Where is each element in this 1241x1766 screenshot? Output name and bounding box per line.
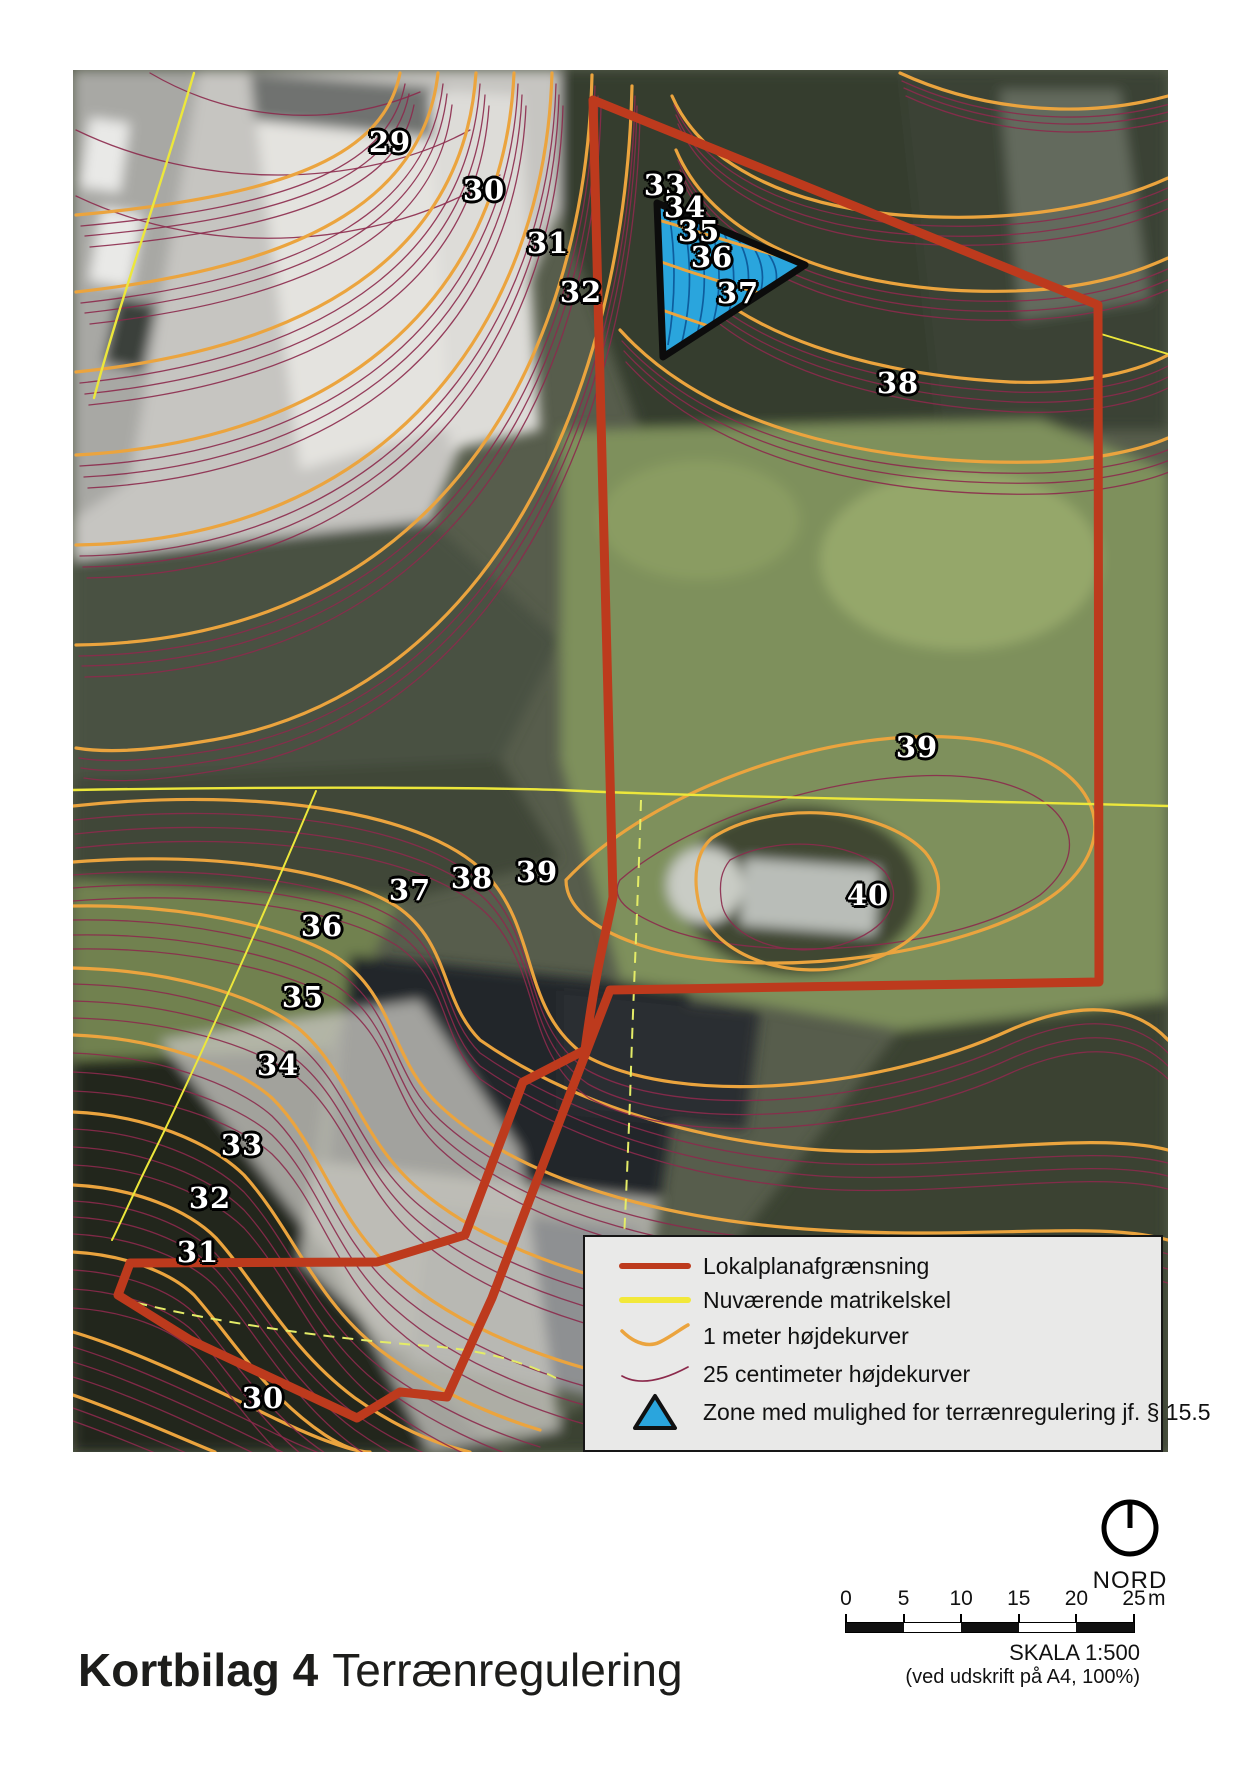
title-bold: Kortbilag 4 bbox=[78, 1644, 318, 1696]
legend-label: Nuværende matrikelskel bbox=[703, 1287, 951, 1314]
scale-tick-label: 0 bbox=[840, 1587, 852, 1611]
legend-item-25cm-contour: 25 centimeter højdekurver bbox=[585, 1357, 1161, 1391]
orange-contour-icon bbox=[607, 1323, 703, 1349]
page-title: Kortbilag 4Terrænregulering bbox=[78, 1643, 683, 1697]
scale-unit-label: m bbox=[1148, 1587, 1166, 1611]
map-legend: Lokalplanafgrænsning Nuværende matrikels… bbox=[583, 1235, 1163, 1452]
legend-label: Zone med mulighed for terrænregulering j… bbox=[703, 1399, 1211, 1426]
legend-item-boundary: Lokalplanafgrænsning bbox=[585, 1249, 1161, 1283]
scale-text: SKALA 1:500 bbox=[845, 1640, 1140, 1666]
map-sheet-page: 2930313233343536373839403738393635343332… bbox=[0, 0, 1241, 1766]
title-regular: Terrænregulering bbox=[332, 1644, 682, 1696]
north-icon bbox=[1092, 1494, 1168, 1560]
scale-tick-label: 15 bbox=[1007, 1587, 1030, 1611]
blue-triangle-icon bbox=[607, 1392, 703, 1432]
scale-segment bbox=[1076, 1623, 1134, 1632]
map-canvas bbox=[0, 0, 1241, 1766]
scale-tick-label: 10 bbox=[950, 1587, 973, 1611]
scale-segment bbox=[846, 1623, 904, 1632]
scale-segment bbox=[961, 1623, 1019, 1632]
scale-bar: 0 5 10 15 20 25 m bbox=[845, 1622, 1135, 1633]
scale-tick-label: 25 bbox=[1122, 1587, 1145, 1611]
yellow-line-icon bbox=[607, 1297, 703, 1303]
legend-label: 1 meter højdekurver bbox=[703, 1323, 909, 1350]
legend-label: 25 centimeter højdekurver bbox=[703, 1361, 970, 1388]
legend-item-1m-contour: 1 meter højdekurver bbox=[585, 1319, 1161, 1353]
red-line-icon bbox=[607, 1263, 703, 1269]
purple-contour-icon bbox=[607, 1362, 703, 1386]
legend-item-zone: Zone med mulighed for terrænregulering j… bbox=[585, 1395, 1161, 1429]
scale-segment bbox=[904, 1623, 962, 1632]
scale-tick-label: 5 bbox=[898, 1587, 910, 1611]
scale-segment bbox=[1019, 1623, 1077, 1632]
scale-tick-label: 20 bbox=[1065, 1587, 1088, 1611]
legend-item-matrikelskel: Nuværende matrikelskel bbox=[585, 1283, 1161, 1317]
legend-label: Lokalplanafgrænsning bbox=[703, 1253, 929, 1280]
scale-subtext: (ved udskrift på A4, 100%) bbox=[795, 1666, 1140, 1689]
north-indicator: NORD bbox=[1092, 1494, 1168, 1595]
